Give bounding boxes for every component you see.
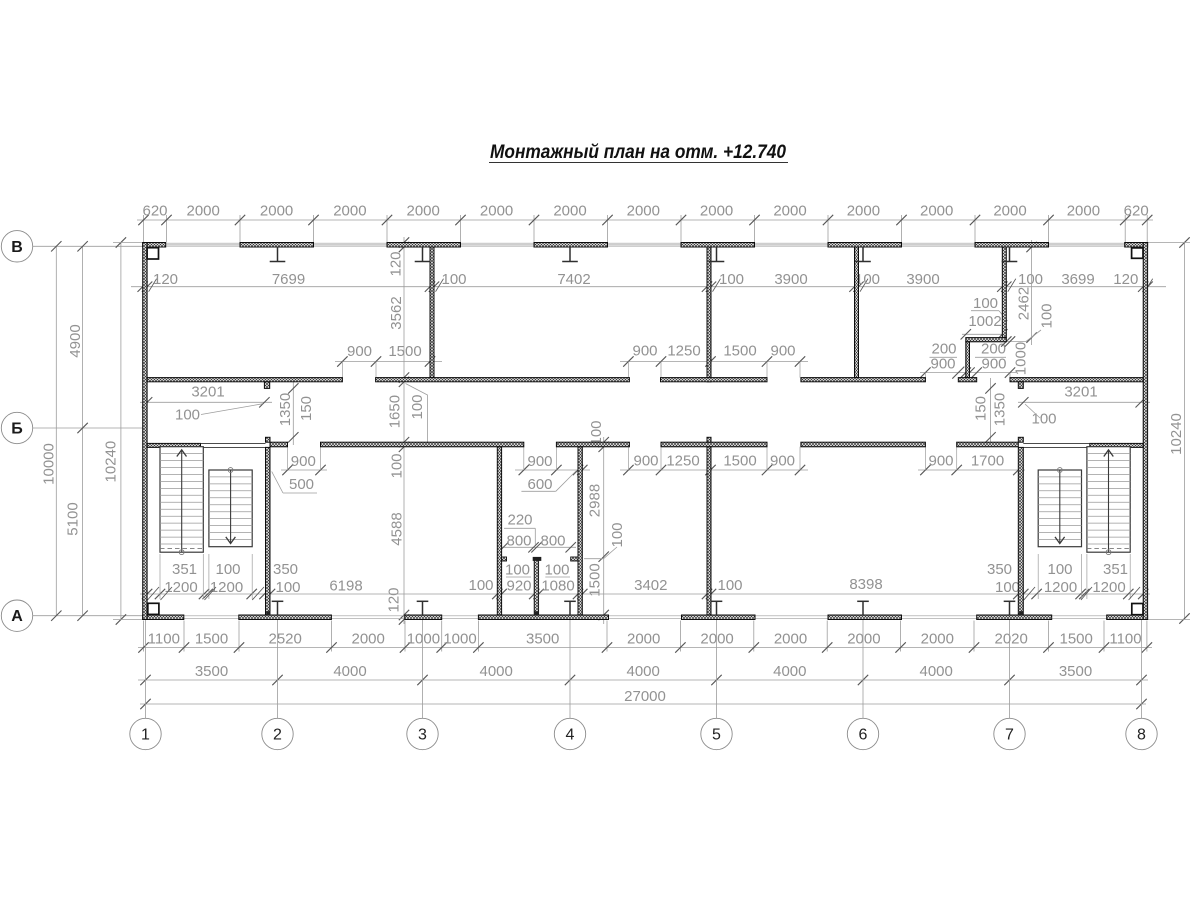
- svg-text:1250: 1250: [666, 453, 699, 470]
- svg-text:4588: 4588: [389, 512, 406, 545]
- svg-text:1100: 1100: [1109, 631, 1141, 648]
- svg-text:5100: 5100: [65, 502, 82, 535]
- svg-text:2000: 2000: [773, 203, 806, 220]
- svg-text:2000: 2000: [993, 203, 1026, 220]
- svg-text:3900: 3900: [774, 271, 807, 288]
- svg-text:900: 900: [632, 343, 657, 360]
- svg-text:2000: 2000: [333, 203, 366, 220]
- svg-text:2: 2: [273, 727, 282, 744]
- svg-text:2000: 2000: [627, 203, 660, 220]
- svg-text:1350: 1350: [277, 393, 294, 426]
- svg-text:2520: 2520: [269, 631, 302, 648]
- svg-text:6: 6: [859, 727, 868, 744]
- svg-text:500: 500: [289, 476, 314, 493]
- svg-text:1200: 1200: [210, 579, 243, 596]
- svg-text:120: 120: [386, 587, 403, 612]
- svg-text:1500: 1500: [388, 343, 421, 360]
- svg-text:900: 900: [928, 453, 953, 470]
- svg-text:10240: 10240: [103, 441, 120, 483]
- svg-text:1650: 1650: [387, 395, 404, 428]
- svg-text:900: 900: [633, 453, 658, 470]
- svg-text:2000: 2000: [1067, 203, 1100, 220]
- svg-text:8: 8: [1137, 727, 1146, 744]
- svg-text:1500: 1500: [723, 343, 756, 360]
- svg-text:900: 900: [770, 453, 795, 470]
- svg-text:150: 150: [298, 396, 315, 421]
- svg-text:100: 100: [544, 562, 569, 579]
- svg-text:3562: 3562: [388, 296, 405, 329]
- svg-text:3500: 3500: [195, 663, 228, 680]
- svg-text:3201: 3201: [191, 384, 224, 401]
- svg-text:2000: 2000: [920, 203, 953, 220]
- svg-text:10000: 10000: [41, 443, 58, 485]
- svg-text:3500: 3500: [1059, 663, 1092, 680]
- svg-text:3900: 3900: [906, 271, 939, 288]
- svg-text:4: 4: [566, 727, 575, 744]
- svg-text:900: 900: [347, 343, 372, 360]
- svg-text:100: 100: [409, 394, 426, 419]
- svg-text:2000: 2000: [921, 631, 954, 648]
- svg-text:150: 150: [973, 396, 990, 421]
- svg-text:100: 100: [609, 522, 626, 547]
- svg-text:2462: 2462: [1016, 287, 1033, 320]
- svg-text:100: 100: [1018, 271, 1043, 288]
- svg-text:2000: 2000: [260, 203, 293, 220]
- svg-text:100: 100: [719, 271, 744, 288]
- svg-text:1250: 1250: [667, 343, 700, 360]
- svg-text:7699: 7699: [272, 271, 305, 288]
- svg-text:350: 350: [987, 561, 1012, 578]
- svg-text:2000: 2000: [700, 203, 733, 220]
- svg-text:4000: 4000: [920, 663, 953, 680]
- svg-text:2000: 2000: [352, 631, 385, 648]
- svg-text:920: 920: [506, 578, 531, 595]
- svg-text:2000: 2000: [187, 203, 220, 220]
- svg-text:120: 120: [388, 251, 405, 276]
- svg-text:3500: 3500: [526, 631, 559, 648]
- svg-text:2000: 2000: [407, 203, 440, 220]
- svg-text:351: 351: [1103, 561, 1128, 578]
- svg-text:2000: 2000: [774, 631, 807, 648]
- svg-text:1500: 1500: [1060, 631, 1093, 648]
- svg-text:2020: 2020: [995, 631, 1028, 648]
- svg-text:Монтажный план на отм. +12.740: Монтажный план на отм. +12.740: [490, 142, 786, 163]
- svg-text:1500: 1500: [723, 453, 756, 470]
- svg-text:3402: 3402: [634, 577, 667, 594]
- svg-text:4000: 4000: [480, 663, 513, 680]
- svg-text:120: 120: [153, 271, 178, 288]
- svg-text:1350: 1350: [992, 393, 1009, 426]
- svg-text:27000: 27000: [624, 688, 666, 705]
- svg-text:7402: 7402: [557, 271, 590, 288]
- svg-text:1200: 1200: [164, 579, 197, 596]
- svg-text:100: 100: [505, 562, 530, 579]
- svg-text:2000: 2000: [847, 203, 880, 220]
- svg-text:4000: 4000: [627, 663, 660, 680]
- svg-text:1002: 1002: [968, 313, 1001, 330]
- svg-text:100: 100: [275, 579, 300, 596]
- svg-text:4000: 4000: [773, 663, 806, 680]
- svg-text:2000: 2000: [627, 631, 660, 648]
- svg-text:2000: 2000: [480, 203, 513, 220]
- svg-text:900: 900: [930, 356, 955, 373]
- svg-text:900: 900: [981, 356, 1006, 373]
- svg-text:7: 7: [1005, 727, 1014, 744]
- svg-text:Б: Б: [11, 421, 23, 438]
- svg-text:2000: 2000: [700, 631, 733, 648]
- svg-text:1700: 1700: [971, 453, 1004, 470]
- svg-text:350: 350: [273, 561, 298, 578]
- svg-text:100: 100: [175, 407, 200, 424]
- svg-text:4000: 4000: [333, 663, 366, 680]
- svg-text:А: А: [11, 608, 23, 625]
- svg-text:5: 5: [712, 727, 721, 744]
- svg-text:900: 900: [770, 343, 795, 360]
- svg-text:1000: 1000: [443, 631, 476, 648]
- svg-text:620: 620: [1124, 203, 1149, 220]
- svg-text:1200: 1200: [1044, 579, 1077, 596]
- svg-text:1: 1: [141, 727, 150, 744]
- svg-text:2988: 2988: [587, 484, 604, 517]
- svg-text:220: 220: [507, 512, 532, 529]
- svg-text:100: 100: [717, 577, 742, 594]
- svg-text:900: 900: [527, 453, 552, 470]
- svg-text:100: 100: [215, 561, 240, 578]
- svg-text:2000: 2000: [553, 203, 586, 220]
- svg-text:620: 620: [142, 203, 167, 220]
- svg-text:100: 100: [468, 577, 493, 594]
- svg-text:100: 100: [973, 295, 998, 312]
- svg-text:1500: 1500: [195, 631, 228, 648]
- svg-text:1100: 1100: [148, 631, 180, 648]
- svg-text:900: 900: [291, 453, 316, 470]
- svg-text:3699: 3699: [1061, 271, 1094, 288]
- svg-text:1000: 1000: [407, 631, 440, 648]
- svg-text:800: 800: [540, 532, 565, 549]
- svg-text:100: 100: [1047, 561, 1072, 578]
- svg-text:1000: 1000: [1013, 342, 1030, 375]
- svg-text:1500: 1500: [587, 563, 604, 596]
- svg-text:6198: 6198: [329, 578, 362, 595]
- svg-text:351: 351: [172, 561, 197, 578]
- svg-text:8398: 8398: [849, 576, 882, 593]
- svg-text:3: 3: [418, 727, 427, 744]
- svg-text:120: 120: [1113, 271, 1138, 288]
- svg-text:В: В: [11, 239, 23, 256]
- svg-text:2000: 2000: [847, 631, 880, 648]
- svg-text:1200: 1200: [1092, 579, 1125, 596]
- svg-text:10240: 10240: [1168, 413, 1185, 455]
- svg-text:100: 100: [389, 453, 406, 478]
- svg-text:800: 800: [506, 532, 531, 549]
- svg-text:4900: 4900: [67, 324, 84, 357]
- svg-text:100: 100: [1039, 303, 1056, 328]
- svg-text:3201: 3201: [1064, 384, 1097, 401]
- svg-text:600: 600: [527, 476, 552, 493]
- svg-text:100: 100: [995, 579, 1020, 596]
- svg-text:100: 100: [441, 271, 466, 288]
- svg-text:1080: 1080: [541, 578, 574, 595]
